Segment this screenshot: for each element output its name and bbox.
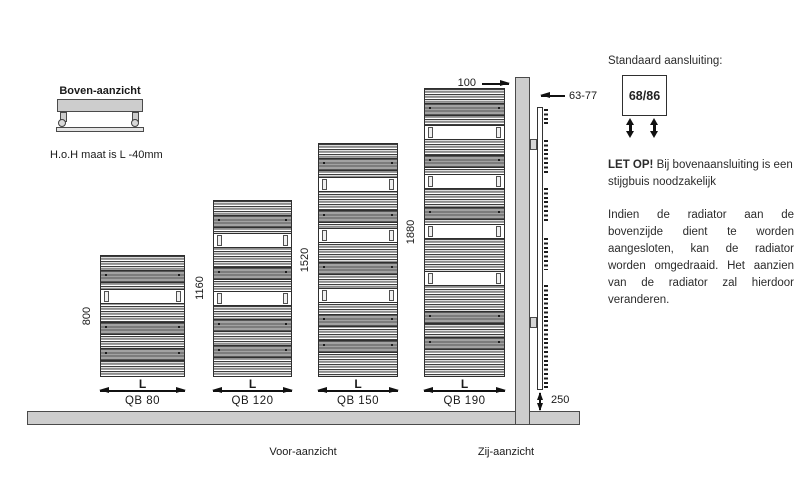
radiator-towel-gap bbox=[319, 177, 397, 192]
wall-distance-arrow bbox=[482, 83, 509, 85]
model-label-qb-80: QB 80 bbox=[100, 395, 185, 407]
model-label-qb-150: QB 150 bbox=[318, 395, 398, 407]
connection-arrow-icon bbox=[653, 124, 656, 132]
side-view-slat-ticks bbox=[544, 109, 548, 124]
width-dim-arrow bbox=[213, 390, 292, 392]
width-dim-label: L bbox=[213, 377, 292, 391]
hoh-note: H.o.H maat is L -40mm bbox=[50, 149, 163, 162]
radiator-dense-band bbox=[319, 314, 397, 327]
side-view-wall-bar bbox=[515, 77, 530, 425]
model-label-qb-190: QB 190 bbox=[424, 395, 505, 407]
front-view-caption: Voor-aanzicht bbox=[248, 446, 358, 459]
floor-clearance-label: 250 bbox=[551, 394, 569, 407]
technical-drawing-canvas: Boven-aanzicht H.o.H maat is L -40mm 800… bbox=[0, 0, 800, 487]
radiator-towel-gap bbox=[214, 233, 291, 248]
side-view-slat-ticks bbox=[544, 285, 548, 388]
height-label-qb-80: 800 bbox=[81, 286, 97, 346]
radiator-qb-190 bbox=[424, 88, 505, 377]
side-view-slat-ticks bbox=[544, 238, 548, 270]
connection-arrow-icon bbox=[629, 124, 632, 132]
width-dim-label: L bbox=[100, 377, 185, 391]
height-label-qb-120: 1160 bbox=[194, 258, 210, 318]
side-view-caption: Zij-aanzicht bbox=[451, 446, 561, 459]
floor-bar bbox=[27, 411, 580, 425]
width-dim-arrow bbox=[424, 390, 505, 392]
radiator-dense-band bbox=[425, 155, 504, 168]
connection-size-label: 68/86 bbox=[629, 89, 660, 103]
top-view-left-connector-icon bbox=[58, 119, 66, 127]
radiator-qb-120 bbox=[213, 200, 292, 377]
radiator-dense-band bbox=[425, 103, 504, 116]
radiator-dense-band bbox=[214, 215, 291, 228]
radiator-dense-band bbox=[319, 340, 397, 353]
warning-note-bold: LET OP! bbox=[608, 159, 653, 171]
side-view-bracket bbox=[530, 317, 537, 328]
radiator-dense-band bbox=[319, 158, 397, 171]
connection-size-box: 68/86 bbox=[622, 75, 667, 116]
side-view-bracket bbox=[530, 139, 537, 150]
height-label-qb-190: 1880 bbox=[405, 202, 421, 262]
body-note: Indien de radiator aan de bovenzijde die… bbox=[608, 207, 794, 309]
top-view-body-bar bbox=[57, 99, 143, 112]
connection-title: Standaard aansluiting: bbox=[608, 55, 722, 67]
top-view-title: Boven-aanzicht bbox=[57, 85, 143, 98]
side-view-slat-ticks bbox=[544, 188, 548, 223]
radiator-dense-band bbox=[101, 270, 184, 283]
floor-clearance-arrow bbox=[539, 393, 541, 410]
side-view-slat-ticks bbox=[544, 140, 548, 173]
depth-dim-label: 63-77 bbox=[569, 90, 597, 103]
radiator-qb-150 bbox=[318, 143, 398, 377]
radiator-towel-gap bbox=[319, 288, 397, 303]
radiator-dense-band bbox=[425, 337, 504, 350]
radiator-dense-band bbox=[214, 319, 291, 332]
radiator-towel-gap bbox=[425, 174, 504, 189]
width-dim-label: L bbox=[318, 377, 398, 391]
radiator-towel-gap bbox=[425, 125, 504, 140]
height-label-qb-150: 1520 bbox=[299, 230, 315, 290]
radiator-dense-band bbox=[214, 345, 291, 358]
width-dim-arrow bbox=[318, 390, 398, 392]
radiator-dense-band bbox=[214, 267, 291, 280]
wall-distance-label: 100 bbox=[448, 77, 476, 90]
radiator-dense-band bbox=[319, 262, 397, 275]
side-view-radiator-tube bbox=[537, 107, 543, 390]
top-view-wall-rail bbox=[56, 127, 144, 132]
radiator-towel-gap bbox=[425, 271, 504, 286]
radiator-dense-band bbox=[101, 348, 184, 361]
radiator-towel-gap bbox=[214, 291, 291, 306]
top-view-right-connector-icon bbox=[131, 119, 139, 127]
radiator-towel-gap bbox=[101, 289, 184, 304]
radiator-dense-band bbox=[319, 210, 397, 223]
model-label-qb-120: QB 120 bbox=[213, 395, 292, 407]
radiator-dense-band bbox=[101, 322, 184, 335]
radiator-qb-80 bbox=[100, 255, 185, 377]
radiator-dense-band bbox=[425, 207, 504, 220]
radiator-towel-gap bbox=[319, 228, 397, 243]
radiator-towel-gap bbox=[425, 224, 504, 239]
width-dim-label: L bbox=[424, 377, 505, 391]
radiator-dense-band bbox=[425, 311, 504, 324]
warning-note: LET OP! Bij bovenaansluiting is een stij… bbox=[608, 157, 794, 191]
width-dim-arrow bbox=[100, 390, 185, 392]
depth-dim-arrow bbox=[541, 95, 565, 97]
